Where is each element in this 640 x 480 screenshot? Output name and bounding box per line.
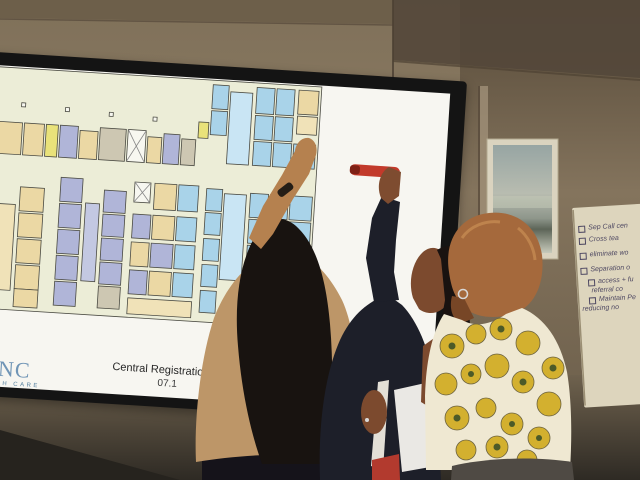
person-b-sleeve bbox=[366, 196, 400, 302]
person-b-ring bbox=[365, 418, 369, 422]
person-a-hair bbox=[237, 219, 332, 464]
meeting-room-photo: Sep Call cen Cross tea eliminate wo Sepa… bbox=[0, 0, 640, 480]
people-foreground bbox=[0, 0, 640, 480]
person-b-lower-hand bbox=[361, 390, 387, 434]
